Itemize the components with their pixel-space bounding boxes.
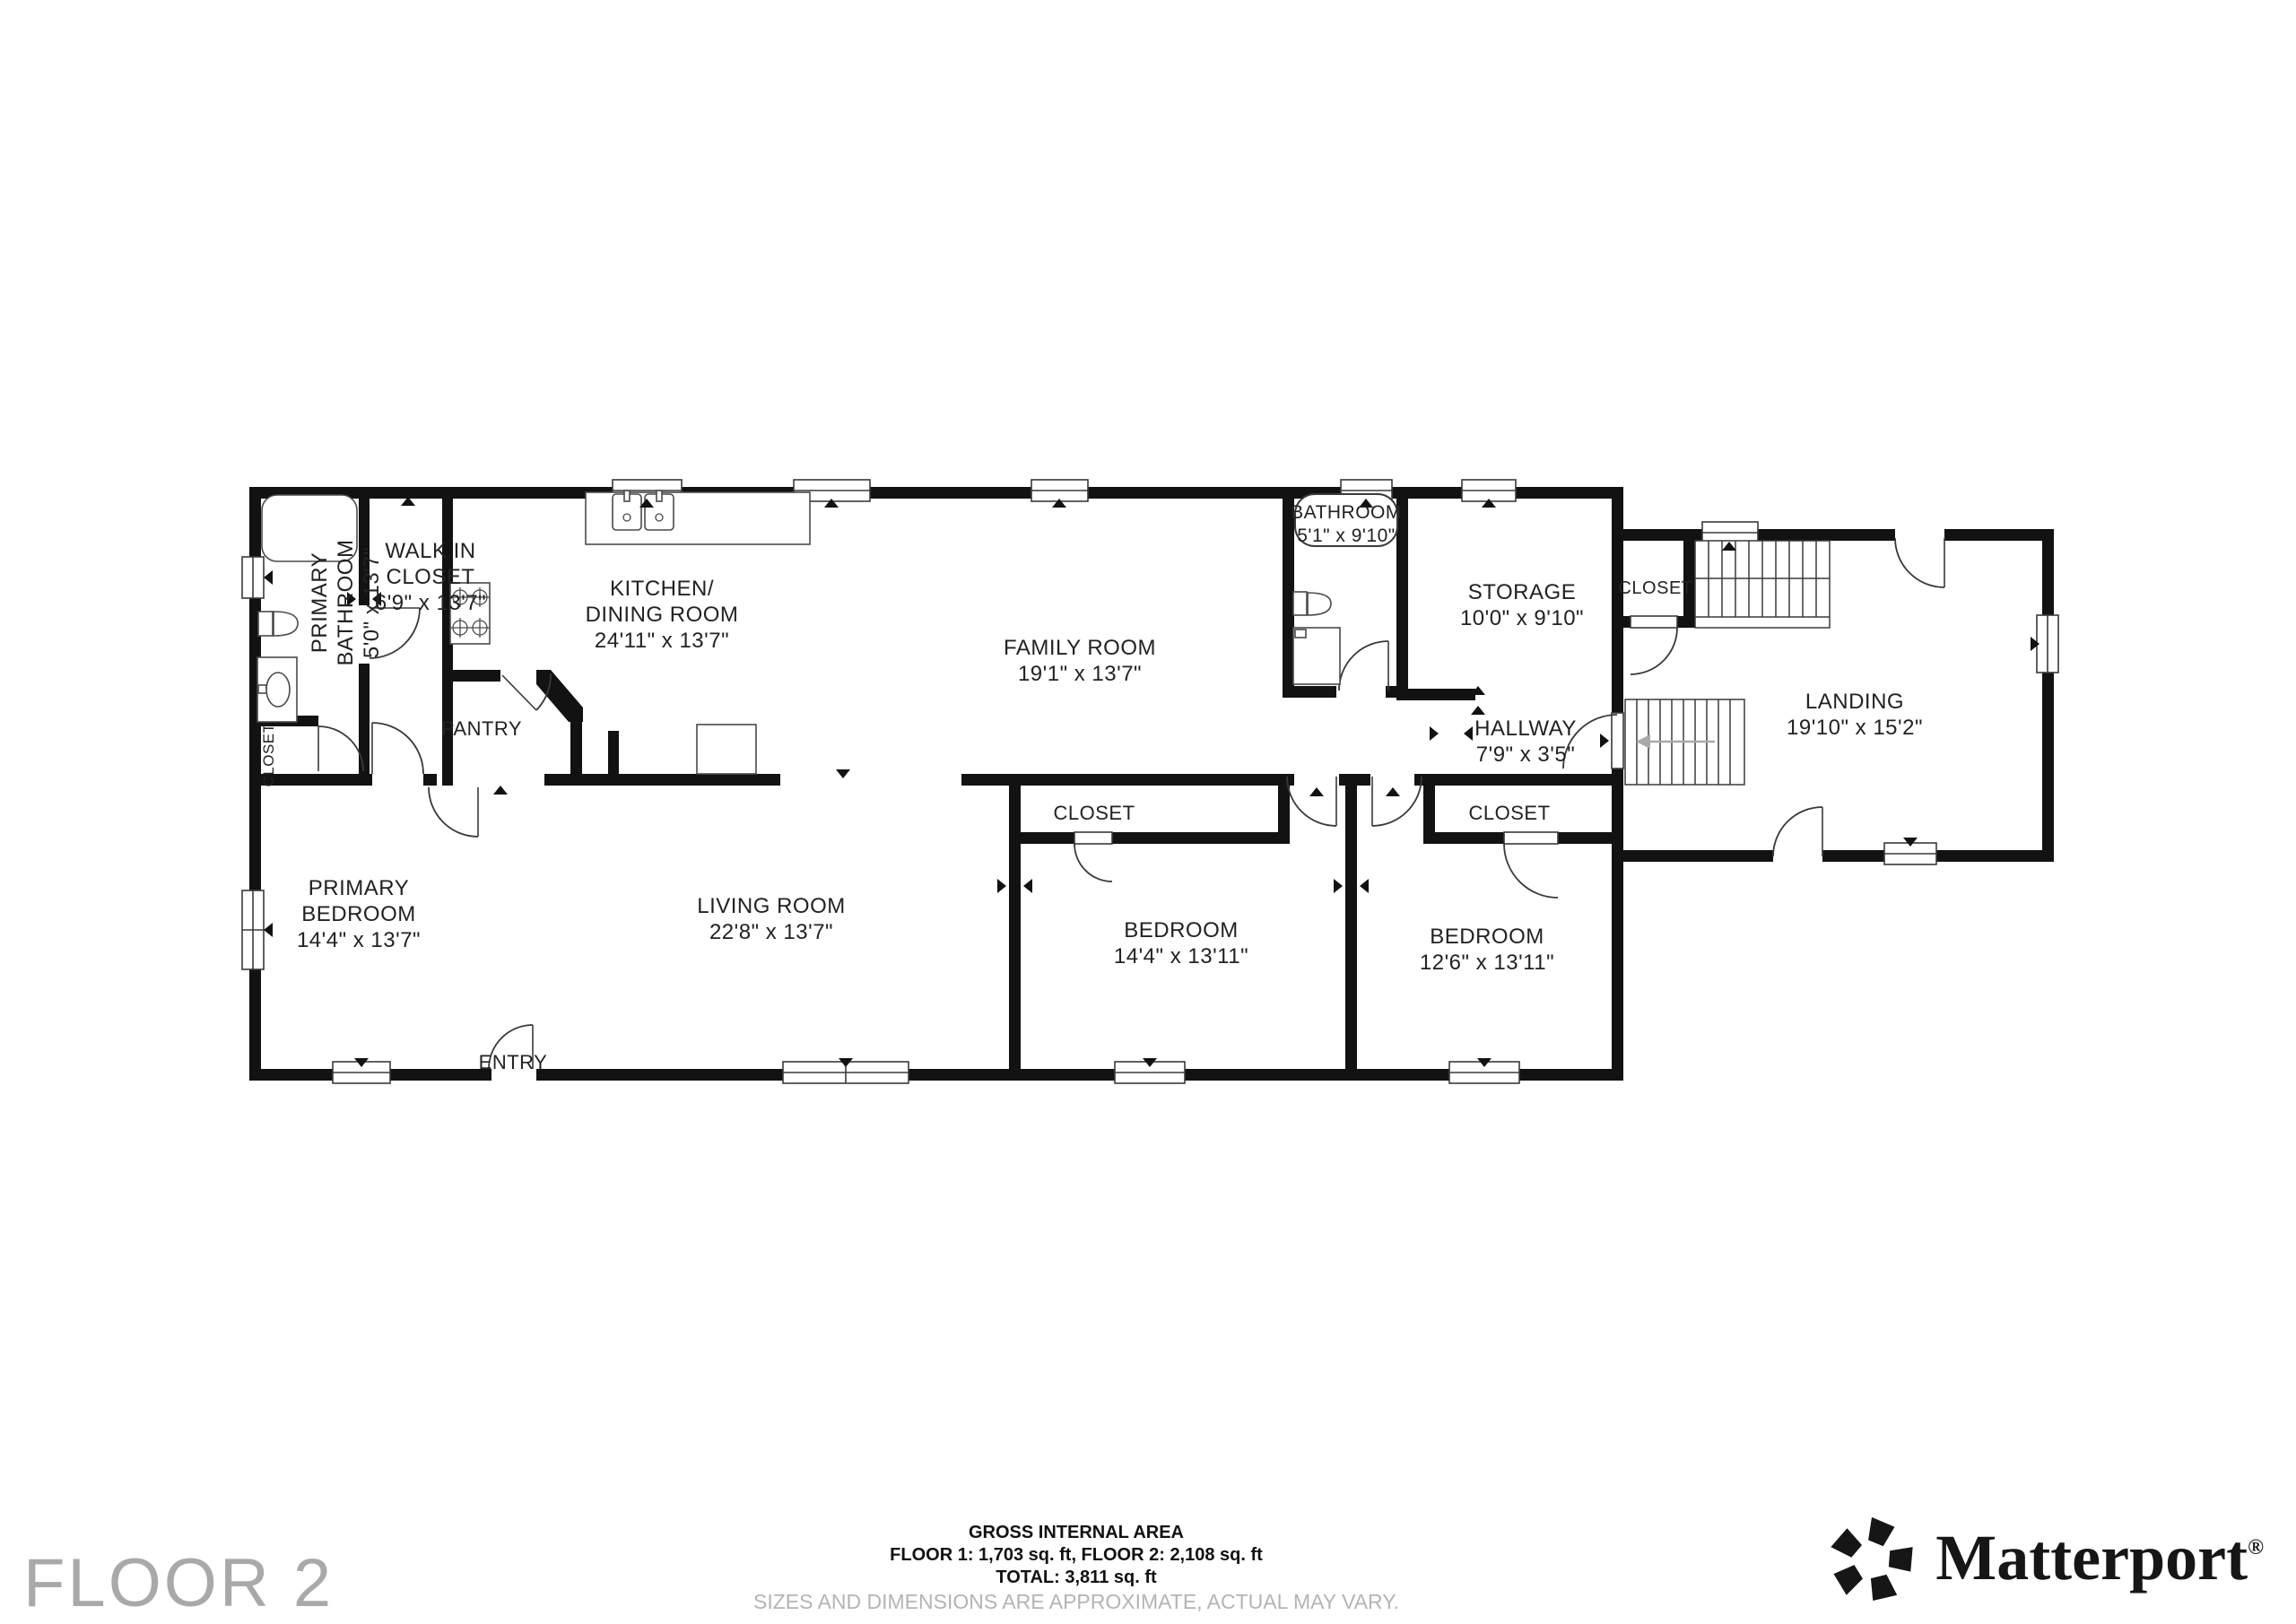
door-extension-closet [1631,616,1677,674]
room-label-storage: STORAGE10'0" x 9'10" [1460,580,1584,630]
room-label-walk-in-closet: WALK INCLOSET6'9" x 13'7" [375,539,486,615]
matterport-logo-icon [1828,1514,1916,1602]
door-closet-1 [1074,832,1112,881]
stairs-upper [1695,541,1830,628]
door-closet-2 [1504,832,1558,898]
room-label-primary-bedroom: PRIMARYBEDROOM14'4" x 13'7" [297,876,421,952]
room-label-living-room: LIVING ROOM22'8" x 13'7" [697,894,846,944]
window-icon [2037,615,2058,673]
shower-icon [1293,628,1340,684]
door-bathroom [1339,641,1388,690]
room-labels: PRIMARYBATHROOM5'0" x 13'7"CLOSETWALK IN… [260,502,1923,1073]
floor-plan-canvas: PRIMARYBATHROOM5'0" x 13'7"CLOSETWALK IN… [0,0,2296,1624]
matterport-logo: Matterport® [1828,1514,2264,1602]
room-label-pantry: PANTRY [441,717,522,740]
room-label-hallway: HALLWAY7'9" x 3'5" [1474,716,1577,767]
room-label-extension-closet: CLOSET [1618,578,1692,598]
door-bedroom-2 [1372,777,1422,826]
window-icon [242,890,264,969]
registered-mark: ® [2248,1536,2264,1559]
room-label-kitchen-dining-room: KITCHEN/DINING ROOM24'11" x 13'7" [586,577,739,653]
room-label-primary-bathroom-closet: CLOSET [260,723,277,786]
door-primary-bedroom [429,787,478,837]
door-walk-in-closet [372,723,423,774]
door-landing-top [1895,529,1944,587]
room-label-bedroom-1-closet: CLOSET [1053,802,1135,824]
room-label-primary-bathroom: PRIMARYBATHROOM5'0" x 13'7" [308,540,384,666]
room-label-landing: LANDING19'10" x 15'2" [1787,690,1923,740]
room-label-bedroom-2: BEDROOM12'6" x 13'11" [1420,925,1554,975]
room-label-bedroom-2-closet: CLOSET [1468,802,1550,824]
fixtures [257,491,1340,774]
door-pb-closet [318,726,363,771]
kitchen-island-icon [697,725,756,774]
room-label-entry: ENTRY [479,1051,548,1073]
toilet-icon [258,612,298,636]
window-icon [242,557,264,598]
floor-title: FLOOR 2 [23,1544,334,1622]
window-icon [1462,480,1516,501]
window-icon [1031,480,1088,501]
door-landing-bottom [1773,807,1822,862]
toilet-icon [1293,592,1331,615]
matterport-wordmark: Matterport® [1935,1521,2264,1595]
door-bedroom-1 [1287,777,1336,826]
sink-vanity-icon [257,657,297,722]
room-label-family-room: FAMILY ROOM19'1" x 13'7" [1004,636,1156,686]
room-label-bedroom-1: BEDROOM14'4" x 13'11" [1114,918,1248,968]
stairs-lower [1625,699,1744,785]
